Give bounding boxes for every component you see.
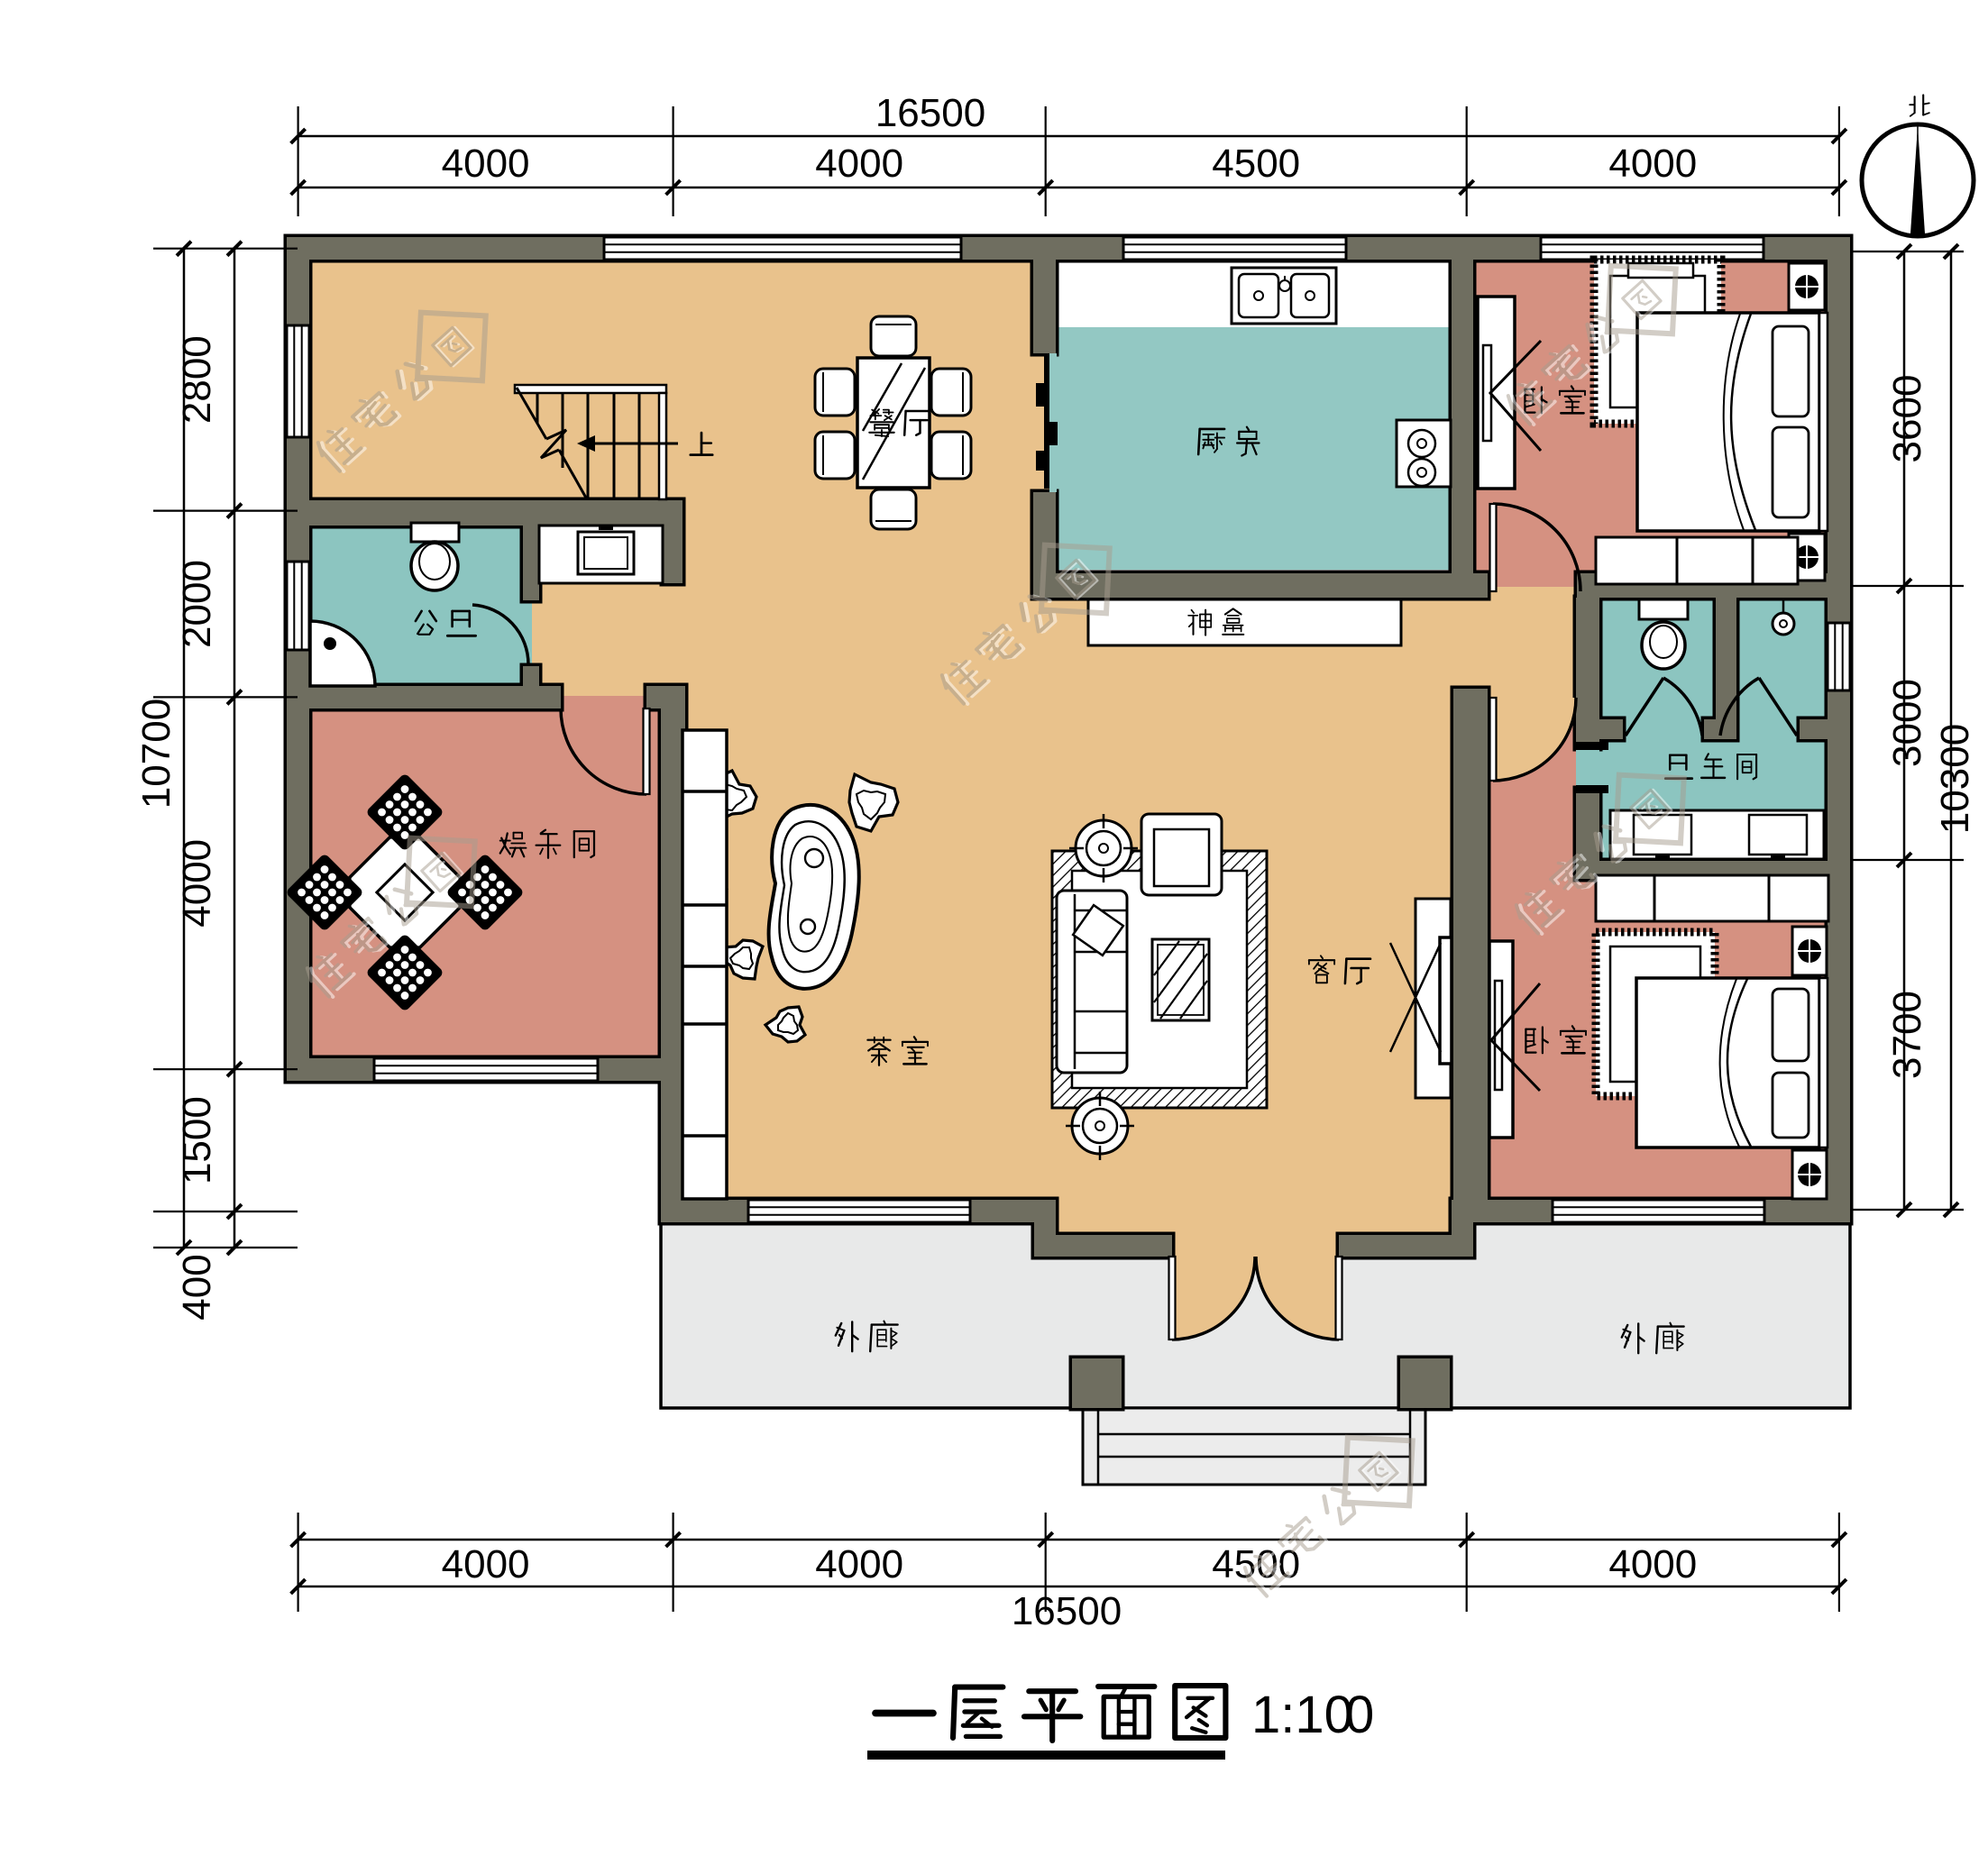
svg-text:2000: 2000 <box>175 560 219 648</box>
svg-text:4500: 4500 <box>1212 142 1300 186</box>
svg-text:4000: 4000 <box>175 839 219 928</box>
svg-text:4000: 4000 <box>442 1542 530 1586</box>
svg-text:2800: 2800 <box>175 335 219 424</box>
svg-text:400: 400 <box>175 1254 219 1320</box>
svg-text:10300: 10300 <box>1933 724 1977 834</box>
svg-text:16500: 16500 <box>875 91 985 135</box>
svg-text:3600: 3600 <box>1885 375 1929 463</box>
svg-text:10700: 10700 <box>134 699 179 809</box>
svg-text:16500: 16500 <box>1012 1589 1122 1633</box>
svg-text:0: 0 <box>1345 1686 1374 1744</box>
svg-text:3000: 3000 <box>1885 679 1929 767</box>
svg-text:1500: 1500 <box>175 1096 219 1184</box>
svg-text:1:10: 1:10 <box>1251 1686 1353 1744</box>
svg-text:4000: 4000 <box>1608 142 1697 186</box>
svg-text:4000: 4000 <box>442 142 530 186</box>
svg-text:3700: 3700 <box>1885 991 1929 1079</box>
svg-text:4000: 4000 <box>815 1542 903 1586</box>
svg-text:4000: 4000 <box>1608 1542 1697 1586</box>
svg-text:4000: 4000 <box>815 142 903 186</box>
